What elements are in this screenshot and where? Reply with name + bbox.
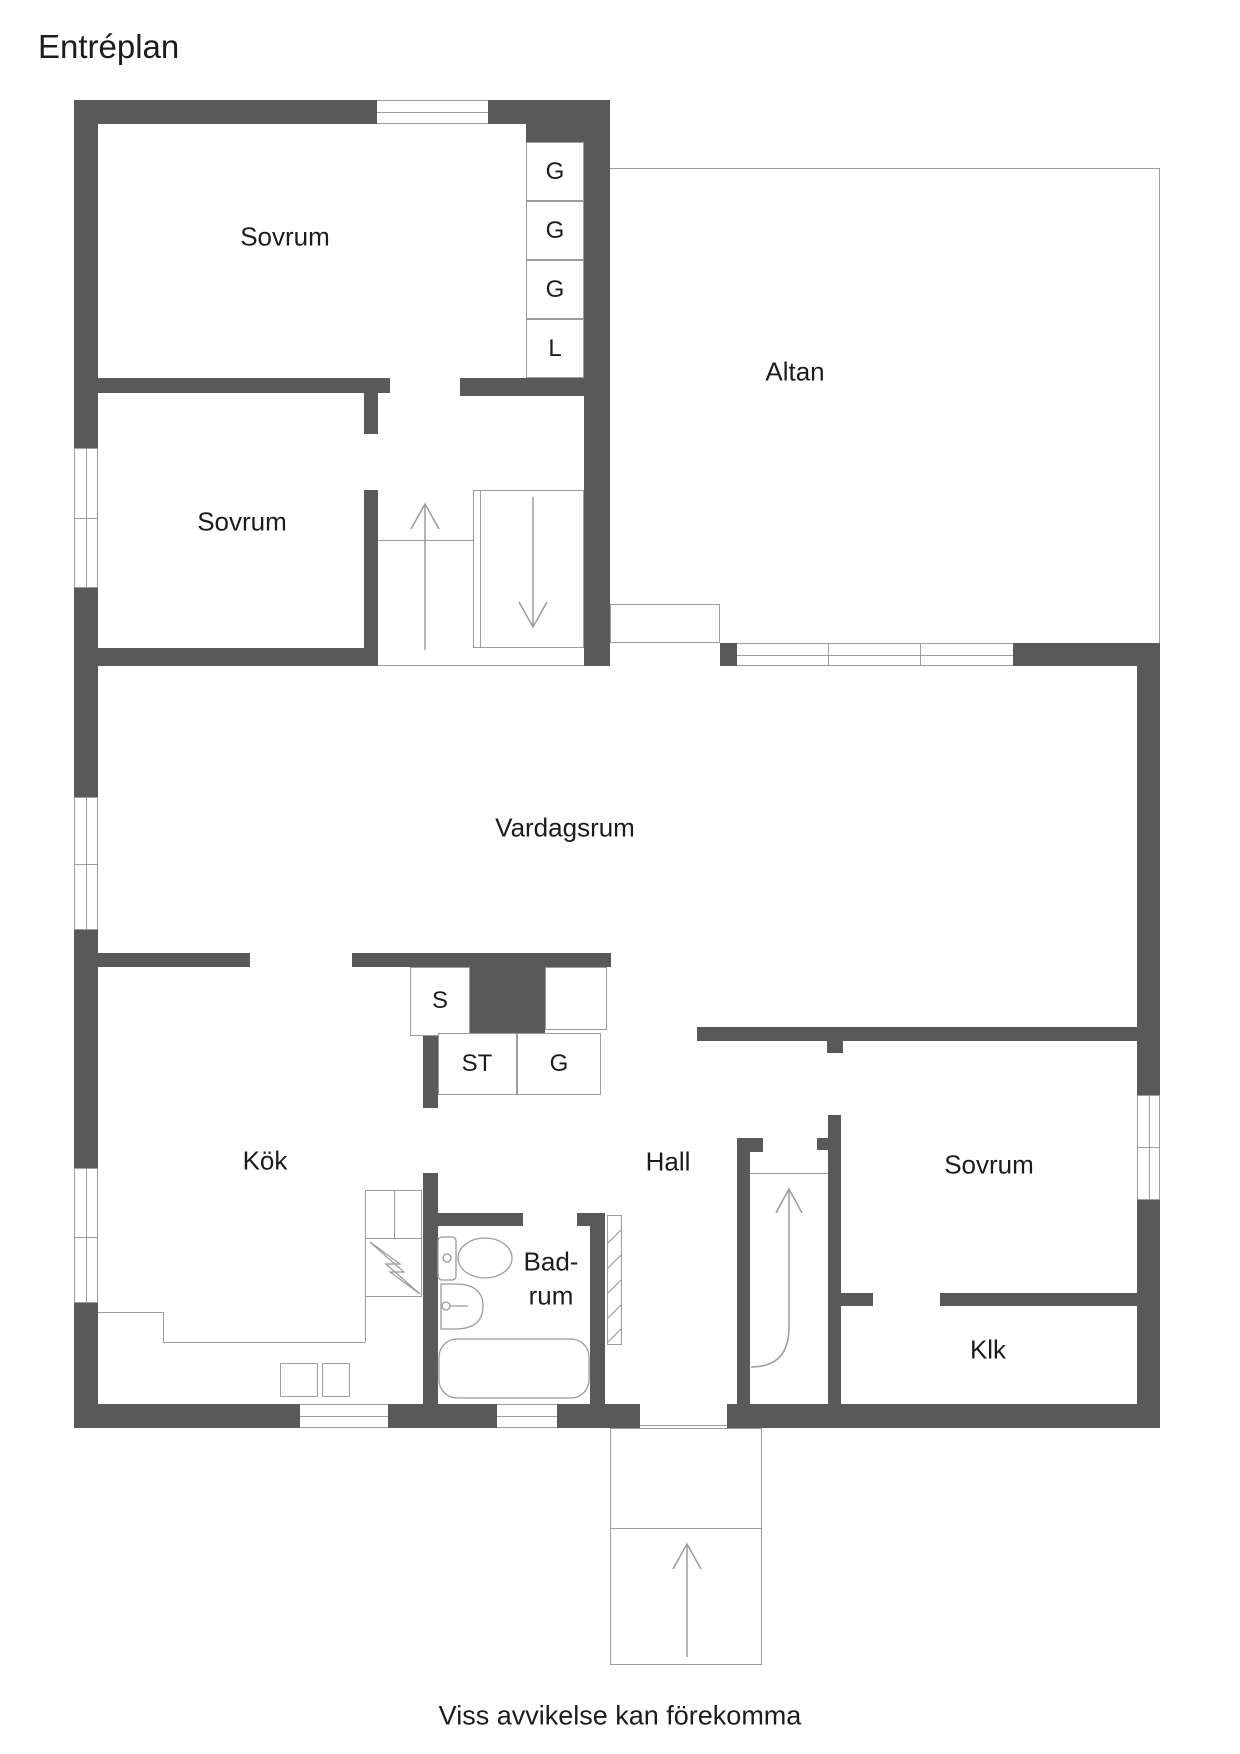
room-label-hall: Hall xyxy=(646,1147,691,1178)
room-label-sovrum-nw: Sovrum xyxy=(240,222,330,253)
wardrobe-label-g4: G xyxy=(550,1050,569,1078)
entrance-arrow xyxy=(673,1544,701,1657)
room-label-vardagsrum: Vardagsrum xyxy=(495,813,635,844)
room-label-badrum-line2: rum xyxy=(529,1281,574,1312)
door-hatch-ticks xyxy=(608,1230,621,1342)
floor-plan: Entréplan Viss avvikelse kan förekomma xyxy=(0,0,1240,1754)
fridge-lightning-icon xyxy=(370,1242,420,1294)
toilet-icon xyxy=(438,1237,512,1280)
wardrobe-label-g3: G xyxy=(546,276,565,304)
wardrobe-label-g1: G xyxy=(546,158,565,186)
wardrobe-label-st: ST xyxy=(462,1050,493,1078)
wardrobe-label-g2: G xyxy=(546,217,565,245)
hall-stairs-up-arrow xyxy=(751,1189,802,1367)
room-label-sovrum-w: Sovrum xyxy=(197,507,287,538)
bathtub-icon xyxy=(439,1339,589,1398)
plan-symbols xyxy=(0,0,1240,1754)
room-label-badrum-line1: Bad- xyxy=(524,1247,579,1278)
stairs-down-arrow xyxy=(519,497,547,627)
room-label-klk: Klk xyxy=(970,1335,1006,1366)
room-label-altan: Altan xyxy=(765,357,824,388)
sink-icon xyxy=(441,1284,483,1329)
wardrobe-label-s: S xyxy=(432,987,448,1015)
wardrobe-label-l: L xyxy=(548,335,561,363)
stairs-up-arrow xyxy=(411,504,439,650)
room-label-kok: Kök xyxy=(243,1146,288,1177)
room-label-sovrum-e: Sovrum xyxy=(944,1150,1034,1181)
